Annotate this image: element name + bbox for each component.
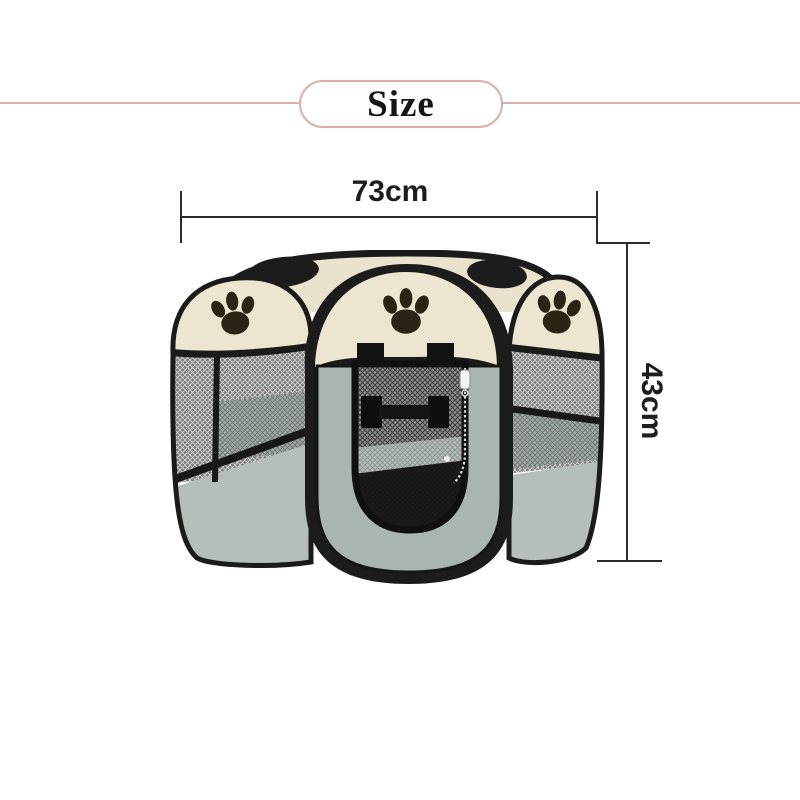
size-pill-label: Size — [367, 86, 435, 123]
height-dim-line — [626, 242, 628, 561]
door-strap-right — [428, 396, 449, 428]
size-diagram: Size 73cm 43cm — [0, 0, 800, 800]
width-dim-label: 73cm — [320, 177, 460, 207]
door-strap-band — [379, 405, 431, 419]
height-dim-tick-top — [596, 242, 650, 244]
height-dim-label: 43cm — [636, 341, 666, 461]
zipper-stop — [444, 456, 450, 462]
playpen-left-panel — [165, 250, 317, 570]
width-dim-tick-left — [180, 191, 182, 243]
velcro-tab-left — [357, 343, 384, 367]
width-dim-tick-right — [596, 191, 598, 243]
playpen-door-panel — [305, 264, 513, 584]
width-dim-line — [181, 216, 598, 218]
size-pill: Size — [299, 80, 503, 128]
door-strap-left — [361, 396, 382, 428]
velcro-tab-right — [427, 343, 454, 367]
product-illustration — [165, 250, 610, 585]
playpen-right-panel — [505, 250, 610, 572]
